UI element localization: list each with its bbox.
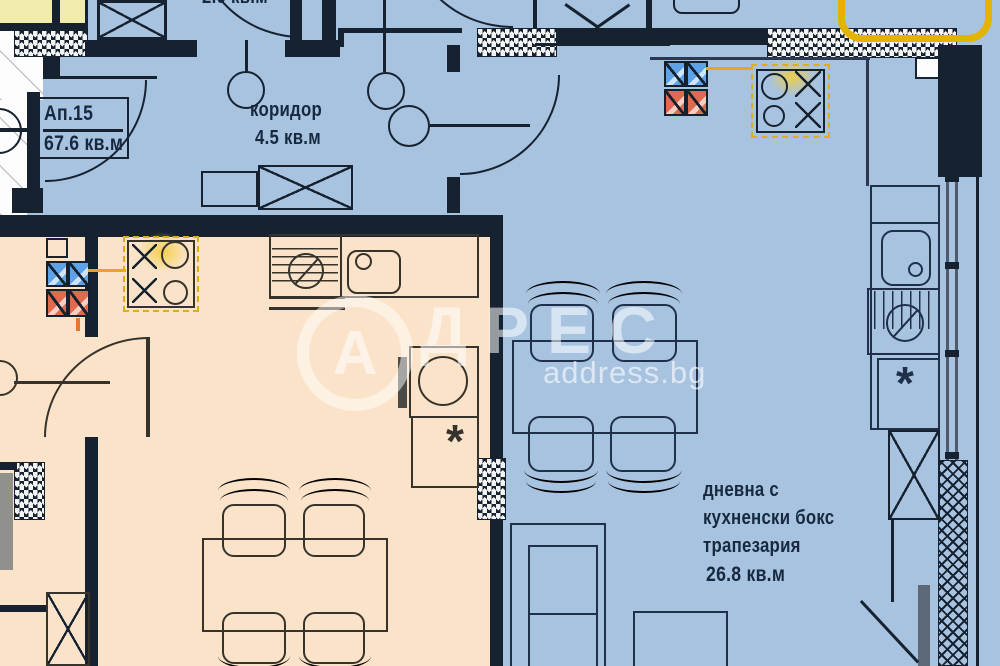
sofa-divider <box>528 613 598 615</box>
window <box>946 177 949 460</box>
stove-burner-x <box>132 244 157 269</box>
chair-back <box>526 481 596 493</box>
sink-icon <box>595 3 630 29</box>
wall-segment <box>12 188 43 213</box>
wall-niche <box>915 57 940 79</box>
sink-icon <box>565 3 600 29</box>
gas-line <box>706 67 753 70</box>
bathtub-icon <box>673 0 740 14</box>
sink-icon <box>881 230 931 286</box>
counter-edge <box>558 33 635 40</box>
shaft-blue-icon <box>46 261 68 287</box>
pendant-line <box>383 0 386 72</box>
shaft-blue-icon <box>68 261 90 287</box>
sink-drain <box>355 253 372 270</box>
wardrobe-symbol <box>97 0 167 40</box>
door-swing-line <box>860 600 919 663</box>
outer-wall-line <box>976 177 979 666</box>
shaft-box <box>46 238 68 258</box>
counter-edge <box>650 57 870 60</box>
wall-segment <box>0 462 17 470</box>
shaft-red-icon <box>664 89 686 116</box>
wall-segment <box>52 0 60 24</box>
counter-edge <box>866 60 869 186</box>
window-mullion <box>945 262 959 269</box>
ceiling-light <box>367 72 405 110</box>
hatched-wall <box>477 458 506 520</box>
ceiling-light <box>388 105 430 147</box>
fridge-asterisk: * <box>446 414 464 468</box>
wall-segment <box>85 237 98 337</box>
door-jamb-line <box>891 520 894 602</box>
sink-drain <box>908 262 923 277</box>
wall-segment <box>85 40 197 57</box>
pendant-line <box>245 40 248 73</box>
chair <box>222 504 286 557</box>
watermark-site: address.bg <box>543 355 706 391</box>
chair-back <box>299 656 371 666</box>
counter-divider <box>870 222 940 224</box>
stove-burner-x <box>795 102 821 128</box>
door-arc <box>408 0 513 28</box>
cabinet-symbol <box>201 171 258 207</box>
chair <box>303 504 365 557</box>
room-area-living: 26.8 кв.м <box>706 563 785 587</box>
apartment-number: Ап.15 <box>44 102 93 126</box>
chair-back <box>608 481 680 493</box>
shaft-red-icon <box>686 89 708 116</box>
coffee-table <box>633 611 728 666</box>
room-name-living-3: трапезария <box>703 535 801 558</box>
watermark-letter: А <box>333 318 378 389</box>
wall-segment <box>672 28 767 45</box>
wall-segment <box>655 30 672 45</box>
entry-threshold <box>43 76 157 79</box>
wall-segment <box>535 43 670 46</box>
wall-segment <box>43 57 60 77</box>
chair-back <box>218 656 290 666</box>
stove-burner-x <box>132 278 157 303</box>
watermark-logo-circle: А <box>297 295 413 411</box>
sofa-seat <box>528 545 598 666</box>
window-mullion <box>945 452 959 459</box>
door-jamb <box>447 177 460 213</box>
wall-segment <box>938 45 982 177</box>
wall-segment <box>533 0 537 28</box>
stove-burner-o <box>161 241 189 269</box>
wall-segment <box>0 605 47 612</box>
gas-line <box>88 269 126 272</box>
wardrobe-symbol <box>258 165 353 210</box>
hatched-wall <box>14 30 88 57</box>
shaft-red-icon <box>46 289 68 317</box>
hatched-wall <box>14 462 45 520</box>
window-mullion <box>945 350 959 357</box>
window <box>955 177 958 460</box>
room-name-living-1: дневна с <box>703 479 779 502</box>
stove-burner-o <box>761 73 788 100</box>
room-name-corridor: коридор <box>250 99 322 122</box>
highlight-outline-yellow <box>838 0 992 42</box>
wardrobe-symbol <box>46 592 90 666</box>
room-area-top-partial: 2.0 кв.м <box>202 0 268 9</box>
stove-burner-o <box>163 280 188 305</box>
wall-segment <box>646 0 652 28</box>
stove-burner-o <box>763 105 785 127</box>
wall-segment <box>322 0 336 45</box>
room-name-living-2: кухненски бокс <box>703 507 834 530</box>
wall-segment <box>340 28 462 33</box>
stove-burner-x <box>795 71 821 97</box>
pendant-line <box>14 381 110 384</box>
shaft-blue-icon <box>664 61 686 87</box>
door-jamb <box>447 45 460 72</box>
gas-riser <box>76 318 80 331</box>
chair <box>528 416 594 472</box>
fridge-asterisk: * <box>896 356 914 410</box>
shaft-red-icon <box>68 289 90 317</box>
window-mullion <box>945 175 959 182</box>
crosshatched-wall <box>938 460 968 666</box>
floor-plan: * * Ап.15 67.6 кв.м <box>0 0 1000 666</box>
chair <box>610 416 676 472</box>
living-door-arc <box>460 75 560 175</box>
shaft-column <box>0 473 13 570</box>
apartment-area: 67.6 кв.м <box>44 132 123 156</box>
fridge-icon <box>411 416 479 488</box>
wardrobe-symbol <box>888 430 940 520</box>
apartment-label-box: Ап.15 67.6 кв.м <box>37 97 129 159</box>
shaft-blue-icon <box>686 61 708 87</box>
door-leaf <box>918 585 930 666</box>
counter-divider <box>340 234 342 298</box>
apartment-label-connector <box>0 128 37 131</box>
room-area-corridor: 4.5 кв.м <box>255 127 321 150</box>
